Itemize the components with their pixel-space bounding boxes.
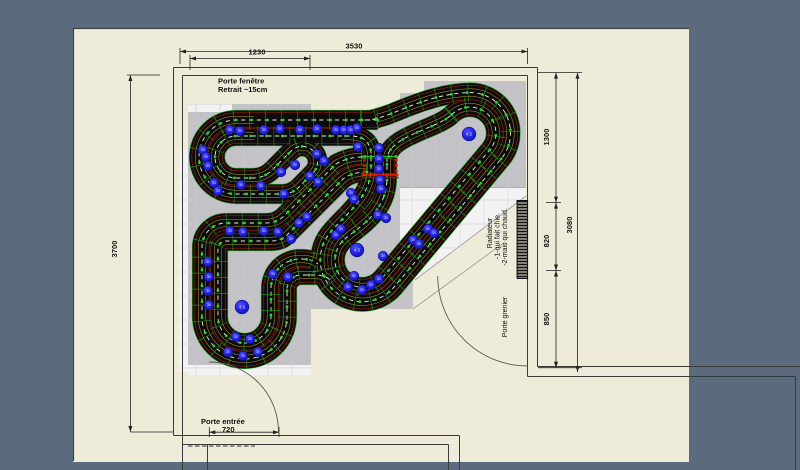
svg-text:Porte grenier: Porte grenier: [502, 296, 509, 337]
svg-text:4.5: 4.5: [239, 304, 246, 309]
svg-text:-1-qui fait chie.: -1-qui fait chie.: [495, 213, 502, 259]
svg-text:30: 30: [379, 187, 383, 191]
svg-text:30: 30: [241, 354, 245, 358]
svg-text:30: 30: [352, 197, 356, 201]
svg-text:30: 30: [426, 227, 430, 231]
svg-text:-2-mais qui chaud.: -2-mais qui chaud.: [502, 208, 509, 266]
svg-text:30: 30: [262, 128, 266, 132]
svg-text:30: 30: [256, 350, 260, 354]
svg-text:30: 30: [239, 183, 243, 187]
svg-text:30: 30: [259, 184, 263, 188]
svg-text:30: 30: [334, 233, 338, 237]
svg-text:30: 30: [352, 274, 356, 278]
svg-text:30: 30: [315, 127, 319, 131]
svg-text:30: 30: [298, 128, 302, 132]
svg-text:4.5: 4.5: [466, 131, 473, 136]
svg-text:30: 30: [378, 178, 382, 182]
svg-text:30: 30: [278, 127, 282, 131]
svg-text:30: 30: [282, 192, 286, 196]
svg-text:30: 30: [377, 167, 381, 171]
svg-text:3530: 3530: [345, 42, 362, 51]
svg-text:30: 30: [377, 277, 381, 281]
svg-text:30: 30: [248, 337, 252, 341]
svg-text:30: 30: [432, 231, 436, 235]
svg-text:30: 30: [377, 146, 381, 150]
svg-text:30: 30: [356, 145, 360, 149]
svg-text:30: 30: [234, 335, 238, 339]
svg-text:30: 30: [377, 157, 381, 161]
svg-text:30: 30: [271, 272, 275, 276]
svg-text:Retrait ~15cm: Retrait ~15cm: [218, 85, 268, 94]
svg-text:30: 30: [349, 128, 353, 132]
svg-text:30: 30: [342, 128, 346, 132]
svg-text:30: 30: [286, 275, 290, 279]
svg-text:30: 30: [369, 283, 373, 287]
svg-text:30: 30: [289, 237, 293, 241]
svg-text:30: 30: [207, 275, 211, 279]
svg-text:30: 30: [206, 260, 210, 264]
svg-text:30: 30: [216, 189, 220, 193]
svg-text:30: 30: [334, 128, 338, 132]
svg-text:30: 30: [316, 180, 320, 184]
svg-text:30: 30: [360, 288, 364, 292]
svg-text:1300: 1300: [542, 128, 551, 145]
svg-text:30: 30: [226, 350, 230, 354]
svg-text:Radiateur: Radiateur: [487, 217, 494, 248]
svg-text:30: 30: [346, 285, 350, 289]
svg-text:30: 30: [381, 254, 385, 258]
svg-text:1230: 1230: [248, 48, 265, 57]
svg-text:30: 30: [376, 213, 380, 217]
svg-text:30: 30: [262, 229, 266, 233]
svg-text:30: 30: [238, 129, 242, 133]
svg-text:30: 30: [241, 230, 245, 234]
svg-text:30: 30: [276, 230, 280, 234]
svg-text:30: 30: [279, 170, 283, 174]
svg-text:30: 30: [204, 155, 208, 159]
svg-text:820: 820: [542, 235, 551, 248]
svg-text:30: 30: [417, 242, 421, 246]
svg-text:30: 30: [297, 221, 301, 225]
svg-text:30: 30: [315, 152, 319, 156]
svg-text:850: 850: [542, 313, 551, 326]
svg-text:3700: 3700: [110, 240, 119, 257]
svg-text:30: 30: [411, 238, 415, 242]
svg-text:30: 30: [355, 126, 359, 130]
svg-text:30: 30: [305, 215, 309, 219]
svg-text:30: 30: [228, 229, 232, 233]
svg-text:30: 30: [322, 159, 326, 163]
svg-text:4.5: 4.5: [354, 247, 361, 252]
svg-text:30: 30: [206, 164, 210, 168]
svg-text:30: 30: [384, 216, 388, 220]
svg-text:30: 30: [201, 148, 205, 152]
svg-text:30: 30: [349, 191, 353, 195]
svg-text:30: 30: [206, 289, 210, 293]
svg-text:30: 30: [293, 163, 297, 167]
svg-text:30: 30: [228, 128, 232, 132]
svg-text:30: 30: [212, 181, 216, 185]
svg-text:720: 720: [222, 425, 235, 434]
svg-text:3080: 3080: [565, 216, 574, 233]
svg-text:30: 30: [207, 303, 211, 307]
svg-text:30: 30: [308, 174, 312, 178]
svg-text:30: 30: [339, 227, 343, 231]
